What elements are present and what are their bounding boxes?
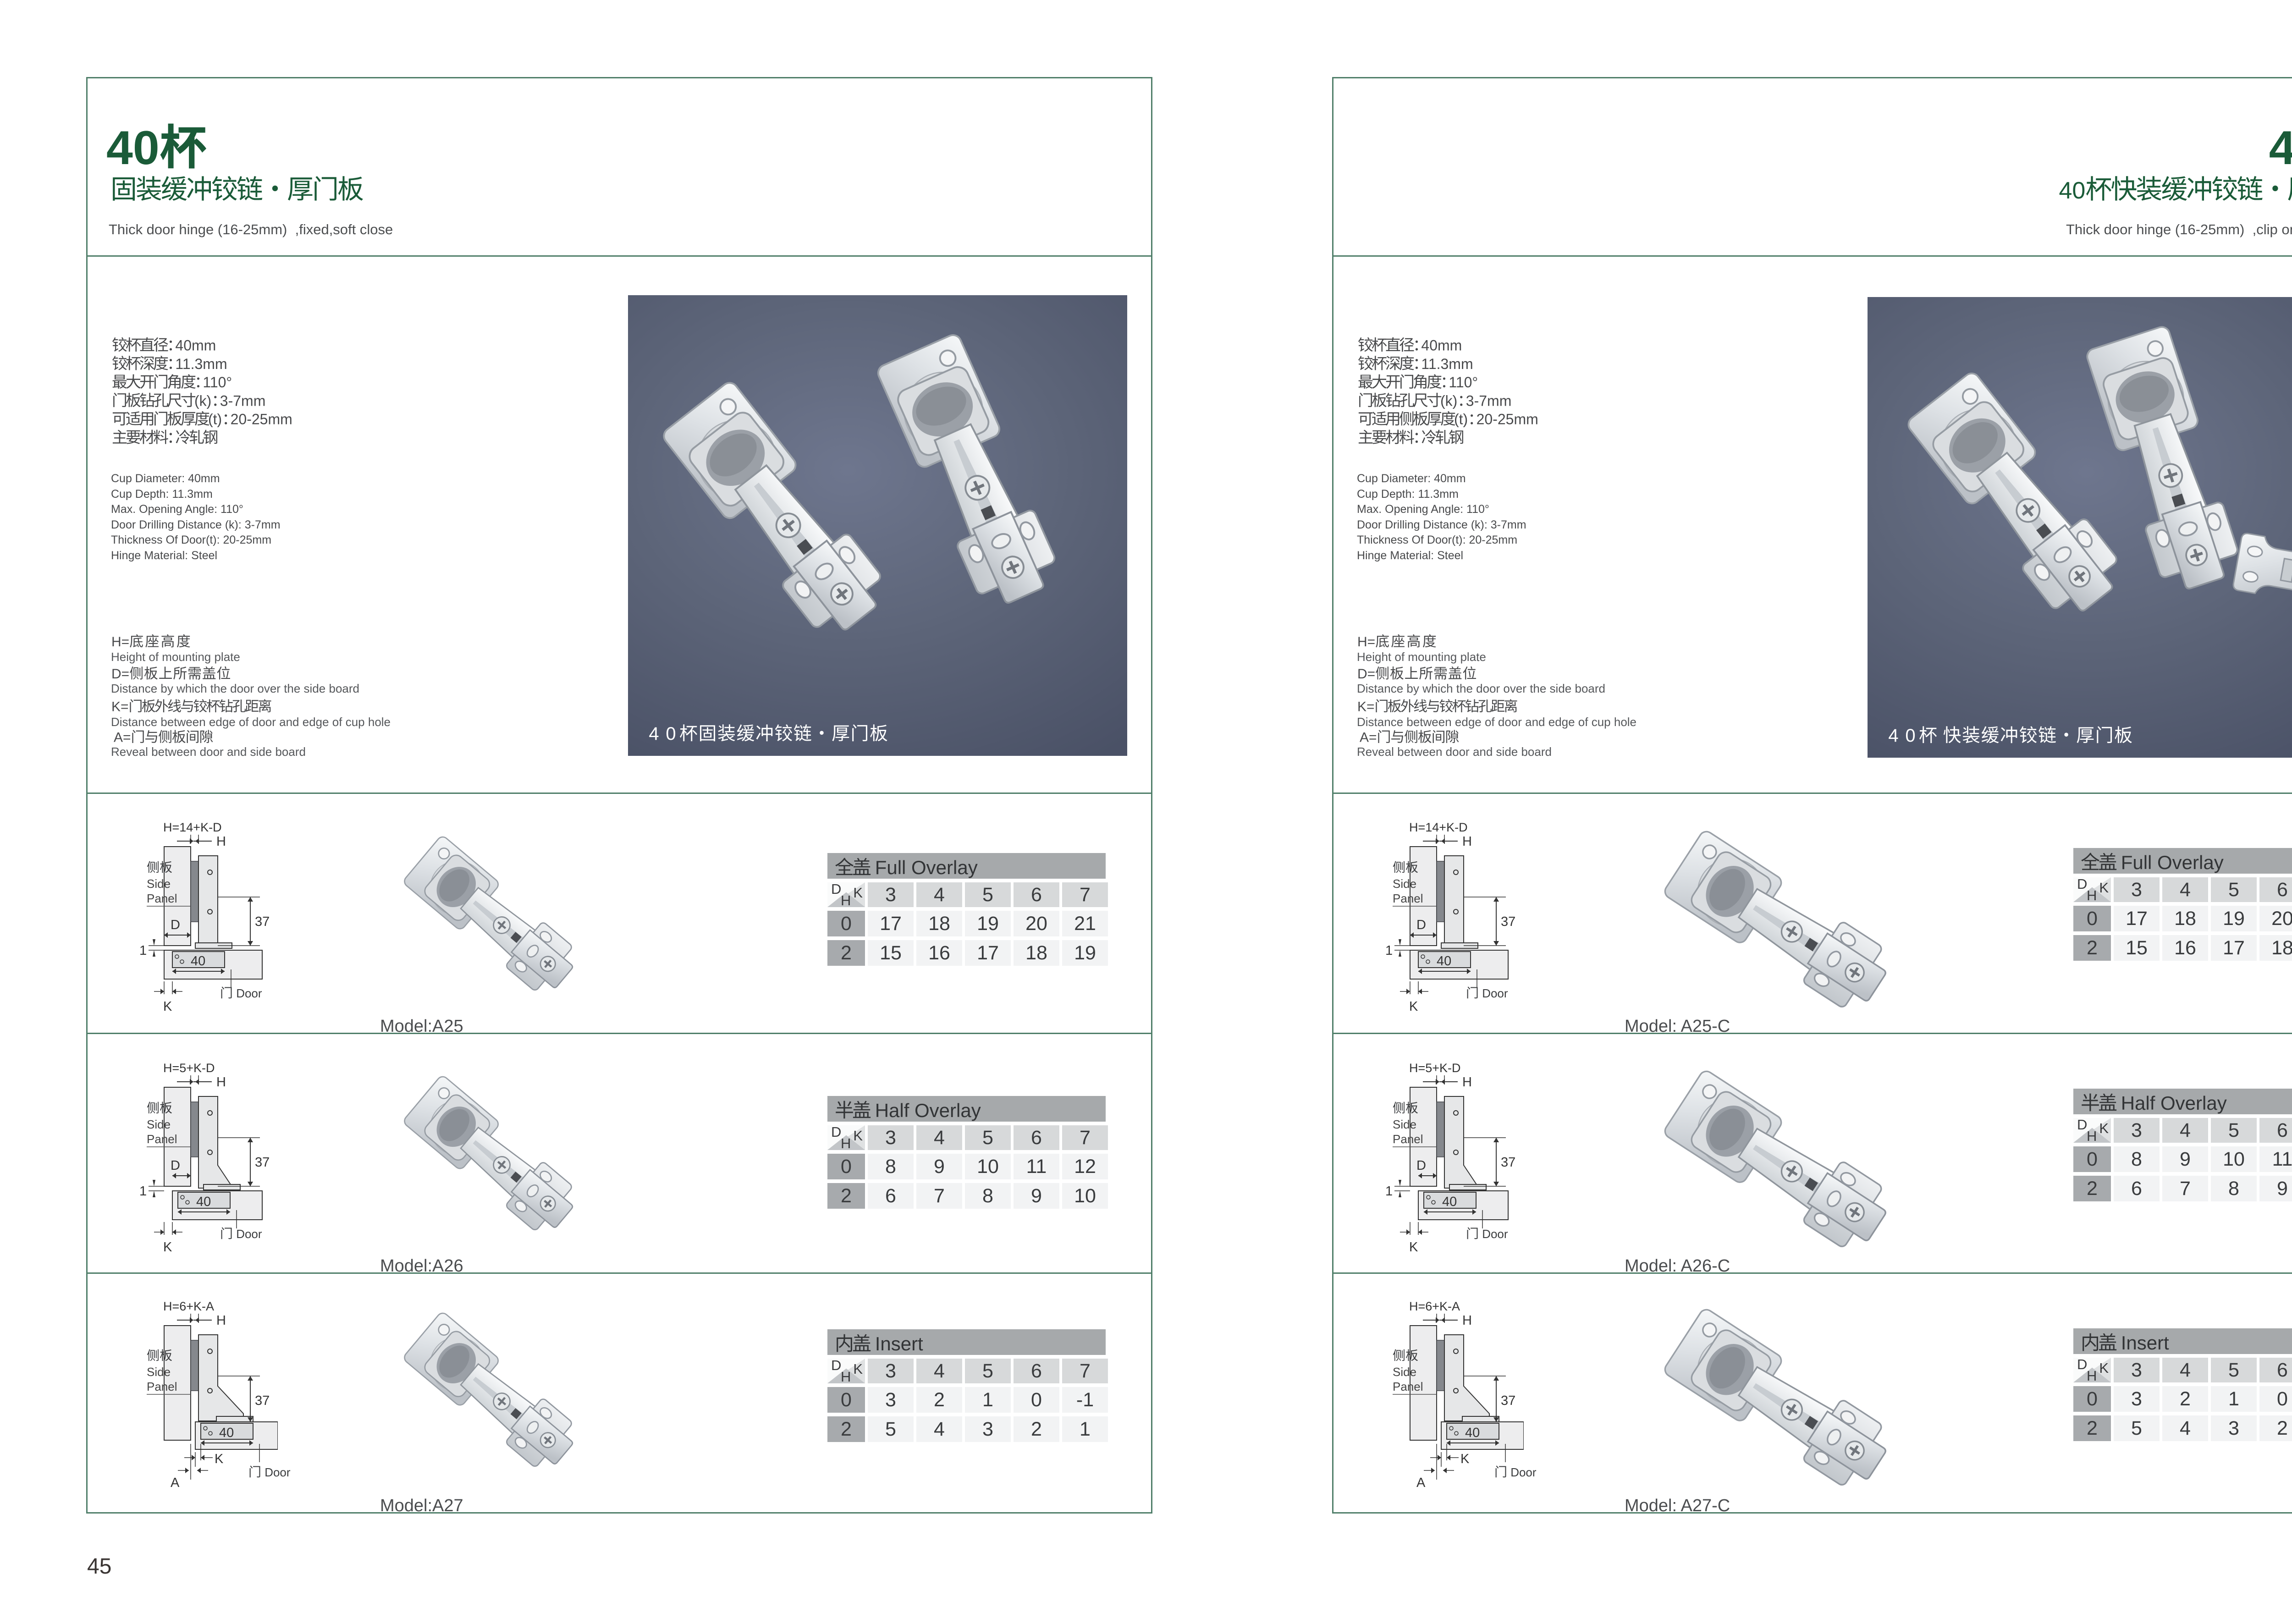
svg-text:40: 40 [1442,1195,1457,1209]
svg-text:Side: Side [147,1118,171,1131]
svg-text:37: 37 [255,1155,270,1170]
svg-text:D: D [1416,1158,1426,1173]
svg-text:Panel: Panel [1393,1380,1423,1393]
svg-text:Panel: Panel [1393,1132,1423,1146]
svg-text:1: 1 [139,943,147,958]
svg-text:D: D [1416,918,1426,932]
svg-text:D: D [171,918,180,932]
svg-text:H: H [216,1313,226,1328]
svg-text:K: K [163,999,172,1014]
svg-text:1: 1 [1385,1184,1393,1199]
svg-text:K: K [1409,1240,1418,1255]
svg-text:Panel: Panel [147,1380,177,1393]
svg-text:H=6+K-A: H=6+K-A [1409,1299,1460,1313]
svg-text:1: 1 [139,1184,147,1199]
svg-text:H=6+K-A: H=6+K-A [163,1299,214,1313]
svg-text:Side: Side [147,1365,171,1379]
svg-text:40: 40 [196,1195,211,1209]
svg-text:Side: Side [1393,877,1416,891]
svg-text:H: H [216,834,226,849]
svg-text:37: 37 [255,914,270,929]
svg-text:A: A [1416,1475,1426,1490]
svg-text:H=14+K-D: H=14+K-D [163,820,222,834]
svg-text:H: H [216,1075,226,1090]
svg-text:H: H [1462,834,1472,849]
svg-text:40: 40 [219,1426,234,1440]
svg-text:37: 37 [1501,1393,1515,1408]
svg-text:Side: Side [1393,1118,1416,1131]
svg-text:40: 40 [191,954,205,969]
svg-text:37: 37 [1501,914,1515,929]
svg-text:K: K [1409,999,1418,1014]
svg-text:Panel: Panel [147,892,177,905]
svg-text:40: 40 [1465,1426,1480,1440]
svg-text:1: 1 [1385,943,1393,958]
svg-text:H: H [1462,1313,1472,1328]
svg-text:H=14+K-D: H=14+K-D [1409,820,1468,834]
svg-text:A: A [171,1475,180,1490]
svg-text:K: K [215,1452,224,1466]
svg-text:Panel: Panel [147,1132,177,1146]
svg-text:K: K [1460,1452,1470,1466]
svg-text:H: H [1462,1075,1472,1090]
svg-text:Panel: Panel [1393,892,1423,905]
svg-text:Side: Side [147,877,171,891]
svg-text:D: D [171,1158,180,1173]
svg-text:H=5+K-D: H=5+K-D [1409,1061,1461,1075]
svg-text:H=5+K-D: H=5+K-D [163,1061,215,1075]
svg-text:Side: Side [1393,1365,1416,1379]
svg-text:37: 37 [1501,1155,1515,1170]
svg-text:37: 37 [255,1393,270,1408]
svg-text:40: 40 [1437,954,1451,969]
svg-text:K: K [163,1240,172,1255]
